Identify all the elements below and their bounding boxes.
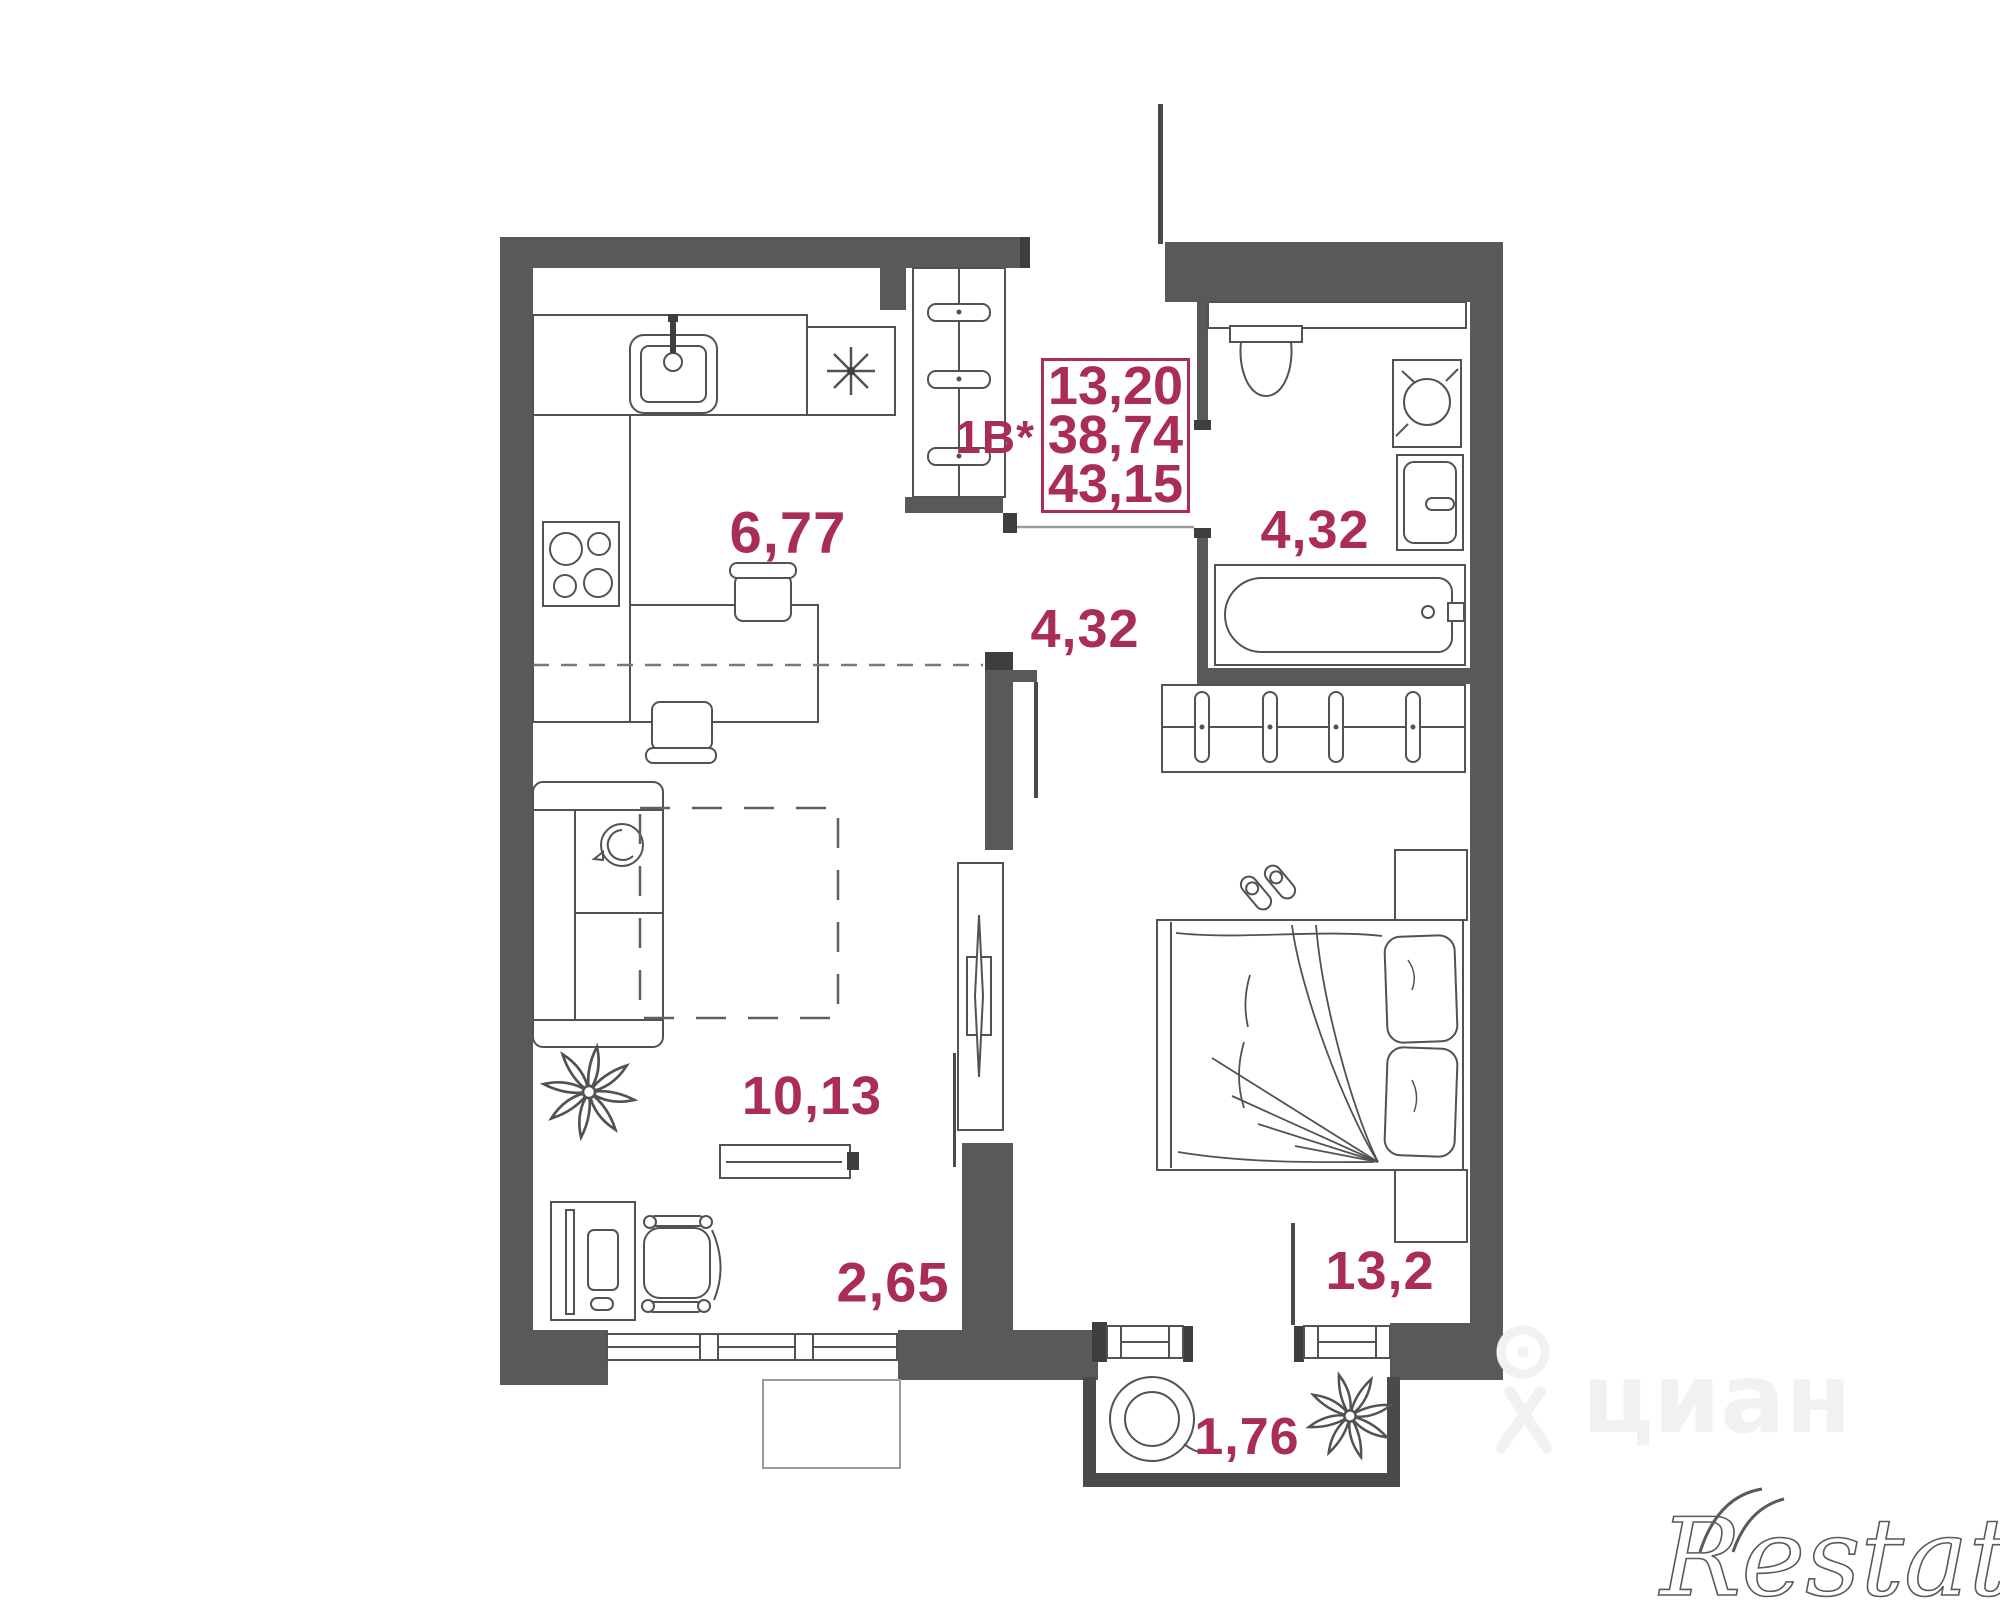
- cian-wordmark: циан: [1582, 1343, 1852, 1455]
- spec-value-total: 43,15: [1048, 460, 1183, 509]
- restate-wordmark: Restate: [1658, 1496, 2000, 1602]
- dining-chair-top: [730, 563, 796, 621]
- monitor-icon: [566, 1210, 574, 1314]
- rug-outline: [640, 808, 838, 1018]
- nightstand-bottom: [1395, 1170, 1467, 1242]
- wardrobe-hanger-rail: [1162, 685, 1465, 772]
- window-bedroom-2: [1304, 1326, 1390, 1358]
- exterior-ledge-outline: [763, 1380, 900, 1468]
- area-label-kitchen: 6,77: [730, 500, 847, 567]
- dining-chair-bottom: [646, 702, 716, 763]
- furniture-layer: циан Restate: [0, 0, 2000, 1602]
- bath-shelf: [1208, 302, 1466, 328]
- office-chair-icon: [642, 1216, 721, 1312]
- bath-sink-icon: [1397, 455, 1463, 550]
- area-label-bathroom: 4,32: [1260, 499, 1369, 561]
- area-label-bedroom: 13,2: [1325, 1240, 1434, 1302]
- bed: [1157, 920, 1463, 1170]
- area-label-hallway: 4,32: [1030, 598, 1139, 660]
- plant-icon: [533, 1036, 645, 1148]
- spec-box: 13,20 38,74 43,15: [1041, 358, 1190, 513]
- tv-stand: [958, 863, 1003, 1130]
- stove-icon: [543, 522, 619, 606]
- media-console: [720, 1145, 859, 1178]
- cian-pin-icon: [1501, 1330, 1547, 1448]
- window-bedroom-1: [1107, 1326, 1183, 1358]
- fridge-icon: [807, 327, 895, 415]
- slippers-icon: [1238, 862, 1299, 912]
- window-living: [607, 1334, 897, 1360]
- desk: [551, 1202, 635, 1320]
- sofa: [533, 782, 663, 1047]
- bathtub-icon: [1215, 565, 1465, 665]
- area-label-corridor: 2,65: [837, 1250, 950, 1315]
- toilet-icon: [1230, 326, 1302, 396]
- mouse-icon: [591, 1298, 613, 1310]
- watermark-cian: циан: [1501, 1330, 1852, 1455]
- plant-icon-balcony: [1301, 1367, 1399, 1465]
- laptop-icon: [588, 1230, 618, 1290]
- unit-type-label: 1B*: [895, 410, 1035, 464]
- watermark-restate: Restate: [1658, 1489, 2000, 1602]
- armchair-icon: [1110, 1377, 1204, 1461]
- washing-machine-icon: [1393, 360, 1461, 447]
- area-label-balcony: 1,76: [1194, 1407, 1299, 1467]
- spec-value-area: 38,74: [1048, 411, 1183, 460]
- spec-value-living: 13,20: [1048, 362, 1183, 411]
- floorplan-canvas: циан Restate 1B* 13,20 38,74 43,15 6,77 …: [0, 0, 2000, 1602]
- asterisk-icon: [827, 347, 875, 395]
- area-label-living: 10,13: [742, 1065, 882, 1127]
- nightstand-top: [1395, 850, 1467, 920]
